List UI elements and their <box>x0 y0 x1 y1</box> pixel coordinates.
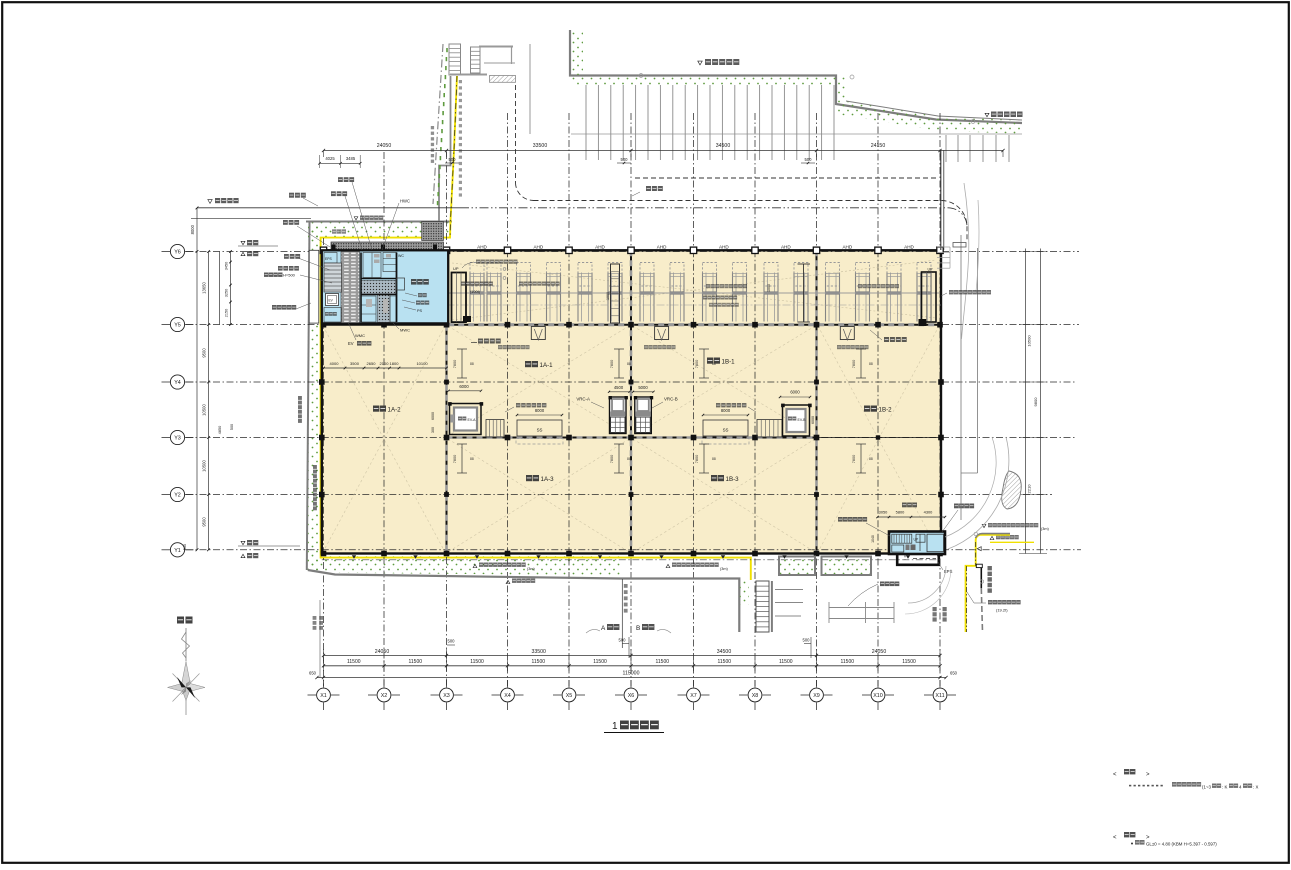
svg-text:6000: 6000 <box>459 384 469 389</box>
svg-text:1B-3: 1B-3 <box>726 476 740 483</box>
svg-text:VRC-B: VRC-B <box>664 397 678 402</box>
svg-text:24150: 24150 <box>871 143 886 149</box>
svg-text:EV-B: EV-B <box>798 418 807 422</box>
svg-text:11500: 11500 <box>717 659 731 665</box>
svg-text:1000: 1000 <box>606 292 610 300</box>
svg-text:7800: 7800 <box>453 360 457 368</box>
svg-text:9500: 9500 <box>202 517 207 527</box>
svg-text:X9: X9 <box>813 693 820 699</box>
svg-text:500: 500 <box>183 544 187 550</box>
svg-text:AHD: AHD <box>904 244 914 249</box>
svg-text:4025: 4025 <box>325 156 335 161</box>
svg-text:11500: 11500 <box>531 659 545 665</box>
svg-text:X7: X7 <box>690 693 697 699</box>
svg-text:8000: 8000 <box>721 408 731 413</box>
svg-text:AHD: AHD <box>657 244 667 249</box>
svg-text:88: 88 <box>869 362 873 366</box>
svg-text:11500: 11500 <box>655 659 669 665</box>
svg-text:(1~3: (1~3 <box>1202 785 1211 790</box>
svg-text:2650: 2650 <box>367 361 377 366</box>
svg-text:H=500: H=500 <box>283 273 296 278</box>
svg-text:10500: 10500 <box>1027 335 1032 347</box>
svg-text:10500: 10500 <box>202 460 207 472</box>
svg-text:9800: 9800 <box>1033 397 1038 407</box>
svg-text:500: 500 <box>803 638 811 643</box>
svg-text:1B-2: 1B-2 <box>879 406 893 413</box>
svg-text:5000: 5000 <box>638 385 648 390</box>
svg-text:X6: X6 <box>628 693 635 699</box>
svg-text:33500: 33500 <box>531 649 546 655</box>
svg-text:500: 500 <box>449 157 457 162</box>
svg-text:X5: X5 <box>566 693 573 699</box>
svg-text:8000: 8000 <box>535 408 545 413</box>
svg-text:500: 500 <box>230 424 234 430</box>
svg-text:1000: 1000 <box>767 284 771 292</box>
svg-text:11500: 11500 <box>779 659 793 665</box>
svg-text:34500: 34500 <box>717 649 732 655</box>
svg-text:24050: 24050 <box>377 143 392 149</box>
svg-text:(3m): (3m) <box>1041 527 1050 531</box>
svg-text:7800: 7800 <box>610 455 614 463</box>
svg-text:4300: 4300 <box>924 510 933 515</box>
svg-text:AHD: AHD <box>719 244 729 249</box>
svg-text:24050: 24050 <box>375 649 390 655</box>
svg-text:<: < <box>1113 772 1117 778</box>
svg-text:7800: 7800 <box>695 360 699 368</box>
svg-text:EPS: EPS <box>325 257 333 261</box>
svg-text:AHD: AHD <box>477 244 487 249</box>
svg-text:88: 88 <box>712 457 716 461</box>
svg-text:X11: X11 <box>935 693 944 699</box>
svg-text:24050: 24050 <box>872 649 887 655</box>
svg-text:>: > <box>1146 835 1150 841</box>
svg-text:UP: UP <box>453 266 459 271</box>
svg-text:Y6: Y6 <box>174 250 181 256</box>
svg-text:300: 300 <box>431 427 435 433</box>
svg-text:650: 650 <box>309 671 317 676</box>
svg-text:7800: 7800 <box>453 455 457 463</box>
svg-text:500: 500 <box>621 157 629 162</box>
svg-text:AHD: AHD <box>781 244 791 249</box>
svg-text:AHD: AHD <box>842 244 852 249</box>
svg-text:115000: 115000 <box>623 671 640 677</box>
svg-text:7800: 7800 <box>852 455 856 463</box>
svg-text:X8: X8 <box>752 693 759 699</box>
svg-text:500: 500 <box>805 157 813 162</box>
svg-text:X4: X4 <box>504 693 511 699</box>
svg-text:AHD: AHD <box>533 244 543 249</box>
svg-text:10100: 10100 <box>416 361 428 366</box>
svg-text:MWC: MWC <box>400 328 410 333</box>
svg-text:GL±0 = 4.80 (KBM H=5.397 - 0.5: GL±0 = 4.80 (KBM H=5.397 - 0.597) <box>1146 842 1217 847</box>
svg-text:UP: UP <box>928 268 934 272</box>
svg-text:(3m): (3m) <box>527 567 536 571</box>
svg-text:B: B <box>636 625 640 632</box>
svg-text:88: 88 <box>712 362 716 366</box>
svg-text:6000: 6000 <box>431 412 435 420</box>
svg-text:X10: X10 <box>873 693 883 699</box>
svg-text:4000: 4000 <box>330 361 340 366</box>
svg-text:1A-2: 1A-2 <box>388 406 402 413</box>
svg-text:3050: 3050 <box>879 510 888 515</box>
svg-text:11500: 11500 <box>408 659 422 665</box>
svg-text:7800: 7800 <box>695 455 699 463</box>
svg-text:Y4: Y4 <box>174 380 181 386</box>
svg-text:650: 650 <box>950 671 958 676</box>
svg-text:X1: X1 <box>320 693 327 699</box>
svg-text:SS: SS <box>723 428 729 433</box>
svg-text:2150: 2150 <box>225 309 229 317</box>
svg-text:EV: EV <box>348 341 354 346</box>
svg-text:4850: 4850 <box>218 426 222 434</box>
svg-text:3450: 3450 <box>225 262 229 270</box>
svg-text:3500: 3500 <box>350 361 360 366</box>
svg-text:1: 1 <box>612 721 618 732</box>
svg-text:1B-1: 1B-1 <box>722 358 736 365</box>
svg-text:VRC-A: VRC-A <box>576 397 590 402</box>
svg-text:4500: 4500 <box>614 385 624 390</box>
svg-text:6000: 6000 <box>811 416 815 424</box>
svg-text:X3: X3 <box>443 693 450 699</box>
svg-text:X2: X2 <box>381 693 388 699</box>
svg-text:Y3: Y3 <box>174 436 181 442</box>
svg-text:8000: 8000 <box>190 224 195 234</box>
svg-text:1A-3: 1A-3 <box>541 476 555 483</box>
svg-text:500: 500 <box>448 639 456 644</box>
svg-text:A: A <box>601 625 606 632</box>
svg-text:2210: 2210 <box>1027 484 1032 494</box>
svg-text:11500: 11500 <box>902 659 916 665</box>
svg-text:11500: 11500 <box>840 659 854 665</box>
svg-text:11500: 11500 <box>593 659 607 665</box>
svg-text:88: 88 <box>470 457 474 461</box>
svg-text:1040: 1040 <box>871 535 875 543</box>
svg-text:13650: 13650 <box>202 282 207 294</box>
svg-text:6000: 6000 <box>790 390 800 395</box>
svg-text:11500: 11500 <box>470 659 484 665</box>
svg-text:SS: SS <box>537 428 543 433</box>
svg-text:(19.2t): (19.2t) <box>996 608 1008 613</box>
svg-text:PS: PS <box>417 309 423 313</box>
svg-text:(3m): (3m) <box>720 567 729 571</box>
svg-text:: K: : K <box>1222 785 1227 790</box>
svg-text:5800: 5800 <box>896 510 905 515</box>
svg-text:88: 88 <box>470 362 474 366</box>
svg-text:1A-1: 1A-1 <box>540 362 554 369</box>
svg-text:<: < <box>1113 835 1117 841</box>
svg-text:34500: 34500 <box>716 143 731 149</box>
svg-text:88: 88 <box>869 457 873 461</box>
svg-text:HWC: HWC <box>400 199 410 204</box>
svg-text:Y1: Y1 <box>174 548 181 554</box>
svg-text:88: 88 <box>627 362 631 366</box>
svg-text:EV-A: EV-A <box>468 418 477 422</box>
svg-text:7800: 7800 <box>852 360 856 368</box>
svg-text:(100t): (100t) <box>470 290 481 294</box>
svg-text:UP: UP <box>914 538 919 542</box>
svg-text:3485: 3485 <box>346 156 356 161</box>
svg-text:AHD: AHD <box>595 244 605 249</box>
svg-text:10500: 10500 <box>202 404 207 416</box>
svg-text:1800: 1800 <box>390 361 400 366</box>
svg-text:Y2: Y2 <box>174 493 181 499</box>
svg-text:2100: 2100 <box>380 361 390 366</box>
svg-text:9500: 9500 <box>202 348 207 358</box>
svg-text:3250: 3250 <box>225 289 229 297</box>
svg-text:WC: WC <box>398 254 404 258</box>
svg-text:7800: 7800 <box>610 360 614 368</box>
svg-text:Y5: Y5 <box>174 323 181 329</box>
svg-text:WMC: WMC <box>355 333 365 338</box>
svg-text:: X: : X <box>1253 785 1258 790</box>
svg-text:33500: 33500 <box>533 143 548 149</box>
svg-text:>: > <box>1146 772 1150 778</box>
svg-text:88: 88 <box>627 457 631 461</box>
svg-text:11500: 11500 <box>347 659 361 665</box>
